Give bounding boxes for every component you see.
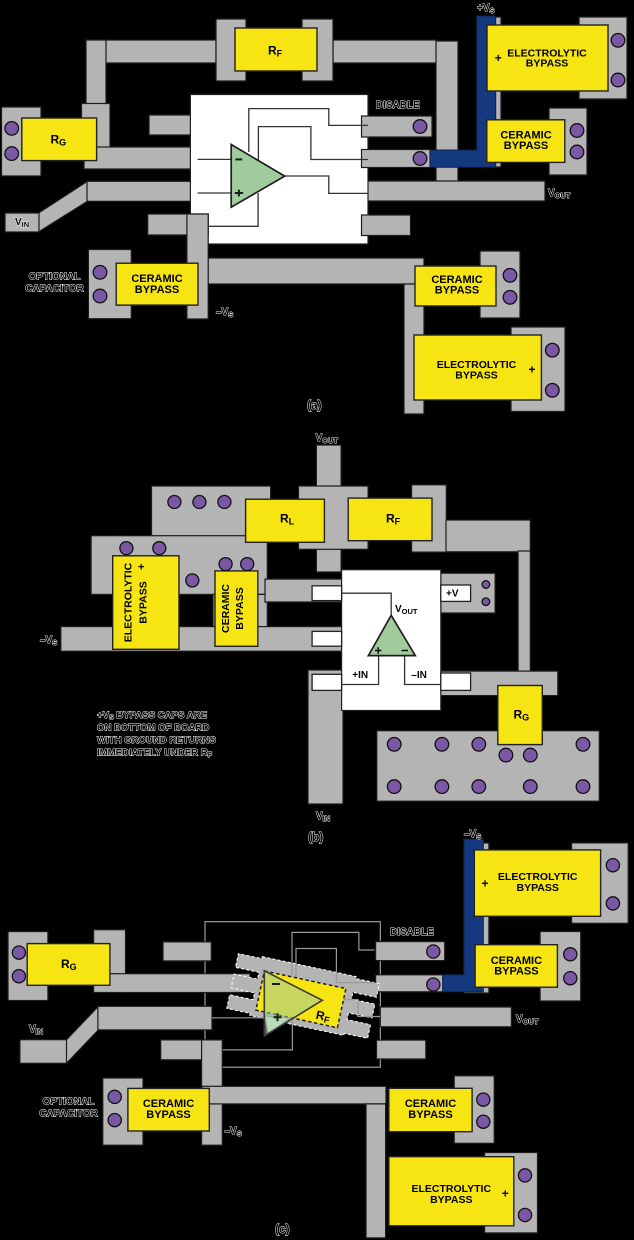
svg-text:WITH GROUND RETURNS: WITH GROUND RETURNS	[97, 735, 216, 746]
svg-text:OPTIONAL: OPTIONAL	[29, 272, 81, 283]
svg-text:BYPASS: BYPASS	[526, 58, 568, 70]
svg-text:BYPASS: BYPASS	[146, 1109, 190, 1121]
svg-text:+: +	[495, 51, 502, 65]
svg-text:BYPASS: BYPASS	[135, 284, 179, 296]
svg-text:DISABLE: DISABLE	[376, 100, 420, 111]
svg-text:BYPASS: BYPASS	[408, 1109, 452, 1121]
svg-text:BYPASS: BYPASS	[504, 140, 548, 152]
svg-text:(c): (c)	[275, 1222, 290, 1236]
svg-text:–IN: –IN	[411, 670, 427, 681]
svg-text:CERAMIC: CERAMIC	[220, 584, 232, 633]
svg-text:CAPACITOR: CAPACITOR	[39, 1109, 98, 1120]
svg-text:DISABLE: DISABLE	[390, 927, 434, 938]
svg-text:BYPASS: BYPASS	[138, 581, 150, 623]
svg-text:+: +	[529, 363, 536, 377]
svg-text:(b): (b)	[308, 830, 323, 844]
svg-text:BYPASS: BYPASS	[430, 1194, 472, 1206]
svg-text:+V: +V	[446, 589, 459, 600]
svg-text:OPTIONAL: OPTIONAL	[43, 1097, 95, 1108]
svg-text:CAPACITOR: CAPACITOR	[25, 284, 84, 295]
svg-text:BYPASS: BYPASS	[234, 587, 246, 629]
svg-text:BYPASS: BYPASS	[455, 370, 497, 382]
svg-text:(a): (a)	[307, 398, 322, 412]
svg-text:+: +	[502, 1187, 509, 1201]
svg-text:BYPASS: BYPASS	[516, 882, 558, 894]
svg-text:ON BOTTOM OF BOARD: ON BOTTOM OF BOARD	[97, 723, 209, 734]
svg-text:IMMEDIATELY UNDER RF: IMMEDIATELY UNDER RF	[97, 748, 213, 760]
svg-text:+IN: +IN	[352, 670, 368, 681]
svg-text:BYPASS: BYPASS	[435, 285, 479, 297]
svg-text:BYPASS: BYPASS	[494, 966, 538, 978]
svg-text:+: +	[138, 562, 144, 574]
svg-text:+: +	[482, 877, 489, 891]
svg-text:ELECTROLYTIC: ELECTROLYTIC	[123, 562, 135, 642]
svg-text:+VS BYPASS CAPS ARE: +VS BYPASS CAPS ARE	[97, 710, 208, 722]
